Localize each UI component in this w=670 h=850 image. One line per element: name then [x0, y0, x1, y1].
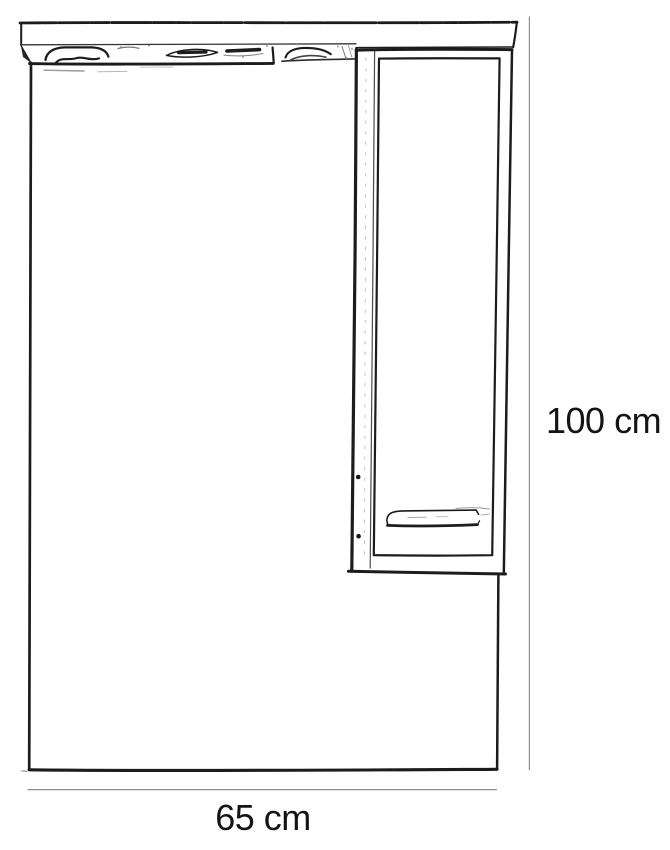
- cabinet-left-outer-edge: [352, 50, 357, 571]
- handle-faint-right-2: [481, 514, 490, 515]
- canopy-hatch-2: [349, 46, 353, 58]
- canopy-divider-tick: [273, 48, 274, 64]
- technical-drawing-canvas: 100 cm 65 cm: [0, 0, 670, 850]
- body-right-lower-edge: [497, 574, 498, 769]
- cornice-bottom-edge: [356, 47, 513, 48]
- canopy-left-slant: [21, 45, 31, 63]
- side-cabinet-frame: [349, 49, 513, 574]
- handle-bottom-line: [388, 525, 478, 526]
- hinge-dot-lower: [356, 534, 361, 539]
- door-handle: [387, 508, 490, 526]
- dimension-lines: [28, 17, 529, 790]
- handle-right-tick-top: [476, 510, 478, 514]
- hinge-dot-upper: [356, 475, 361, 480]
- cabinet-top-edge: [356, 49, 512, 50]
- height-dimension-label: 100 cm: [546, 403, 661, 439]
- lamp-sketch-1-scallop: [56, 58, 99, 63]
- cabinet-door-panel: [374, 58, 500, 555]
- cabinet-right-outer-edge: [504, 50, 512, 574]
- mirror-panel-outline: [22, 63, 499, 771]
- canopy-bottom-line: [30, 63, 274, 64]
- mirror-left-edge: [29, 63, 31, 770]
- cabinet-left-faint-hatch: [365, 58, 367, 560]
- handle-top-line: [389, 510, 476, 514]
- lamp-sketch-3-underline: [224, 53, 263, 55]
- canopy-smudge-1: [44, 70, 84, 71]
- handle-faint-right-1: [456, 508, 490, 509]
- canopy-top-line: [21, 44, 356, 45]
- lamp-sketch-3-bar: [227, 50, 260, 51]
- cornice-top-edge: [20, 22, 517, 23]
- canopy-hatch-1: [342, 47, 347, 61]
- width-dimension-label: 65 cm: [28, 800, 498, 836]
- body-bottom-edge: [29, 769, 497, 770]
- handle-left-curve: [387, 515, 389, 526]
- cornice-right-edge: [513, 23, 517, 48]
- lamp-sketch-2-dash: [179, 52, 207, 53]
- hinge-dots: [356, 475, 361, 539]
- cabinet-bottom-edge: [349, 571, 506, 574]
- light-canopy: [21, 44, 356, 72]
